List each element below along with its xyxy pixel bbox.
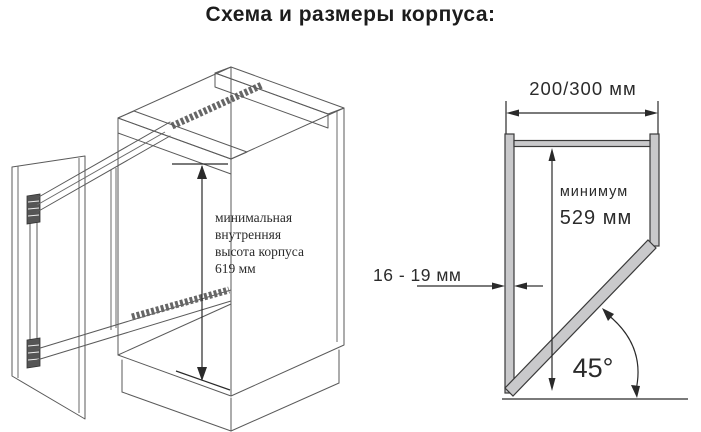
schematic-drawing: 200/300 мм минимум 529 мм [373, 78, 688, 399]
width-dimension: 200/300 мм [506, 78, 658, 137]
thickness-label: 16 - 19 мм [373, 265, 461, 285]
annotation-line-3: высота корпуса [215, 244, 304, 259]
top-panel [514, 141, 650, 147]
cabinet-isometric-drawing: минимальная внутренняя высота корпуса 61… [12, 67, 344, 431]
right-wall [650, 134, 659, 246]
annotation-line-1: минимальная [215, 210, 292, 225]
minimum-value: 529 мм [560, 207, 632, 229]
angle-label: 45° [573, 353, 614, 383]
diagram-canvas: минимальная внутренняя высота корпуса 61… [0, 0, 701, 432]
width-dimension-label: 200/300 мм [529, 78, 636, 99]
diagram-page: Схема и размеры корпуса: [0, 0, 701, 432]
minimum-label: минимум [560, 184, 628, 200]
left-wall [505, 134, 514, 393]
annotation-line-4: 619 мм [215, 261, 256, 276]
door-panel [12, 156, 85, 419]
height-dimension-line [172, 164, 230, 390]
height-annotation: минимальная внутренняя высота корпуса 61… [215, 210, 304, 276]
thickness-dimension: 16 - 19 мм [373, 265, 543, 290]
annotation-line-2: внутренняя [215, 227, 281, 242]
